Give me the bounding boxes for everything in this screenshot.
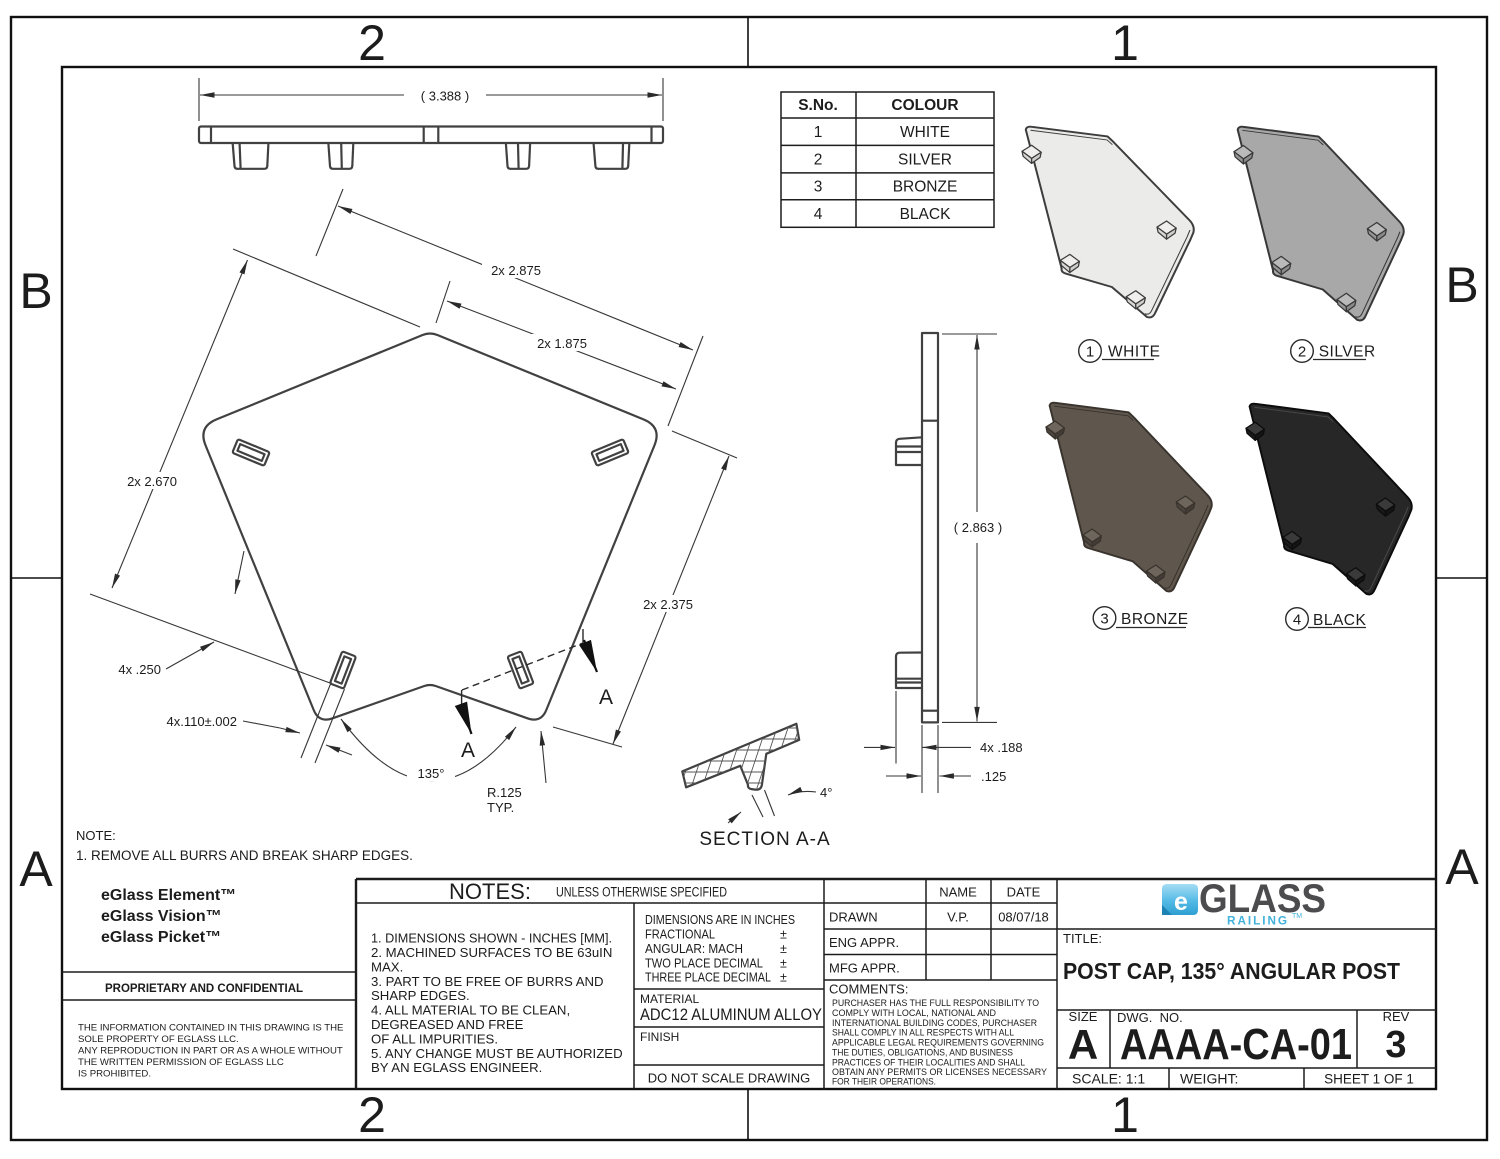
svg-text:2: 2 bbox=[1298, 344, 1306, 361]
svg-text:BRONZE: BRONZE bbox=[893, 179, 958, 196]
svg-text:S.No.: S.No. bbox=[798, 97, 838, 114]
svg-text:2x 2.875: 2x 2.875 bbox=[491, 263, 541, 278]
svg-text:2x 2.375: 2x 2.375 bbox=[643, 597, 693, 612]
svg-text:4: 4 bbox=[1293, 612, 1301, 629]
svg-text:TWO PLACE DECIMAL: TWO PLACE DECIMAL bbox=[645, 956, 763, 970]
svg-text:FINISH: FINISH bbox=[640, 1030, 679, 1044]
svg-text:ENG APPR.: ENG APPR. bbox=[829, 935, 899, 950]
svg-text:V.P.: V.P. bbox=[947, 910, 969, 925]
svg-text:±: ± bbox=[780, 928, 787, 942]
svg-text:NOTES:: NOTES: bbox=[449, 879, 531, 904]
svg-text:2x 1.875: 2x 1.875 bbox=[537, 336, 587, 351]
svg-text:4x.110±.002: 4x.110±.002 bbox=[166, 714, 237, 729]
svg-text:( 3.388 ): ( 3.388 ) bbox=[421, 89, 469, 104]
svg-text:COLOUR: COLOUR bbox=[891, 97, 958, 114]
svg-text:4°: 4° bbox=[820, 785, 832, 800]
svg-text:ANY REPRODUCTION IN PART OR AS: ANY REPRODUCTION IN PART OR AS A WHOLE W… bbox=[78, 1045, 343, 1056]
svg-text:TM: TM bbox=[1292, 913, 1302, 920]
svg-text:A: A bbox=[1068, 1021, 1098, 1068]
svg-text:3. PART TO BE FREE OF BURRS AN: 3. PART TO BE FREE OF BURRS AND bbox=[371, 974, 604, 989]
svg-text:UNLESS OTHERWISE SPECIFIED: UNLESS OTHERWISE SPECIFIED bbox=[556, 885, 727, 900]
svg-text:1: 1 bbox=[1086, 344, 1094, 361]
svg-text:REV: REV bbox=[1383, 1009, 1410, 1024]
svg-text:THE WRITTEN PERMISSION OF EGLA: THE WRITTEN PERMISSION OF EGLASS LLC bbox=[78, 1057, 284, 1068]
svg-text:THE INFORMATION CONTAINED IN T: THE INFORMATION CONTAINED IN THIS DRAWIN… bbox=[78, 1022, 343, 1033]
svg-text:3: 3 bbox=[1100, 611, 1108, 628]
svg-text:AAAA-CA-01: AAAA-CA-01 bbox=[1120, 1020, 1352, 1069]
svg-text:1. REMOVE ALL BURRS AND BREAK: 1. REMOVE ALL BURRS AND BREAK SHARP EDGE… bbox=[76, 848, 413, 863]
svg-text:WEIGHT:: WEIGHT: bbox=[1180, 1071, 1238, 1087]
svg-text:±: ± bbox=[780, 942, 787, 956]
svg-text:3: 3 bbox=[1385, 1024, 1406, 1066]
svg-text:±: ± bbox=[780, 956, 787, 970]
svg-text:4. ALL MATERIAL TO BE CLEAN,: 4. ALL MATERIAL TO BE CLEAN, bbox=[371, 1003, 570, 1018]
svg-text:OF ALL IMPURITIES.: OF ALL IMPURITIES. bbox=[371, 1031, 498, 1046]
svg-text:1: 1 bbox=[1111, 15, 1139, 71]
svg-text:SILVER: SILVER bbox=[1319, 344, 1376, 361]
svg-text:TYP.: TYP. bbox=[487, 800, 514, 815]
svg-text:SILVER: SILVER bbox=[898, 151, 952, 168]
svg-text:A: A bbox=[599, 686, 613, 709]
svg-text:DRAWN: DRAWN bbox=[829, 910, 878, 925]
svg-text:4x .188: 4x .188 bbox=[980, 740, 1023, 755]
svg-text:WHITE: WHITE bbox=[1108, 344, 1160, 361]
svg-text:eGlass Vision™: eGlass Vision™ bbox=[101, 908, 222, 925]
svg-text:PROPRIETARY AND CONFIDENTIAL: PROPRIETARY AND CONFIDENTIAL bbox=[105, 983, 303, 995]
svg-text:eGlass Picket™: eGlass Picket™ bbox=[101, 929, 221, 946]
svg-text:eGlass Element™: eGlass Element™ bbox=[101, 887, 236, 904]
svg-text:1: 1 bbox=[814, 124, 823, 141]
svg-text:e: e bbox=[1174, 888, 1188, 916]
svg-text:A: A bbox=[19, 841, 53, 897]
svg-text:TITLE:: TITLE: bbox=[1063, 931, 1102, 946]
svg-text:±: ± bbox=[780, 970, 787, 984]
svg-text:MATERIAL: MATERIAL bbox=[640, 992, 699, 1006]
svg-text:IS PROHIBITED.: IS PROHIBITED. bbox=[78, 1068, 151, 1079]
svg-text:MAX.: MAX. bbox=[371, 959, 403, 974]
svg-text:2: 2 bbox=[814, 151, 823, 168]
svg-text:POST CAP, 135° ANGULAR POST: POST CAP, 135° ANGULAR POST bbox=[1063, 958, 1401, 984]
svg-text:FRACTIONAL: FRACTIONAL bbox=[645, 928, 715, 942]
svg-text:THREE PLACE DECIMAL: THREE PLACE DECIMAL bbox=[645, 970, 771, 984]
svg-text:B: B bbox=[1445, 257, 1478, 313]
svg-text:135°: 135° bbox=[418, 766, 445, 781]
svg-text:BLACK: BLACK bbox=[900, 206, 951, 223]
svg-text:R.125: R.125 bbox=[487, 785, 522, 800]
svg-text:BRONZE: BRONZE bbox=[1121, 611, 1189, 628]
svg-text:BLACK: BLACK bbox=[1313, 612, 1366, 629]
svg-text:SCALE: 1:1: SCALE: 1:1 bbox=[1072, 1071, 1145, 1087]
svg-text:5. ANY CHANGE MUST BE AUTHORIZ: 5. ANY CHANGE MUST BE AUTHORIZED bbox=[371, 1046, 623, 1061]
svg-text:1: 1 bbox=[1111, 1087, 1139, 1143]
svg-text:ANGULAR: MACH: ANGULAR: MACH bbox=[645, 942, 743, 956]
svg-text:DATE: DATE bbox=[1007, 885, 1041, 900]
svg-text:A: A bbox=[461, 739, 475, 762]
svg-text:2x 2.670: 2x 2.670 bbox=[127, 474, 177, 489]
svg-text:4: 4 bbox=[814, 206, 823, 223]
svg-text:1. DIMENSIONS SHOWN - INCHES [: 1. DIMENSIONS SHOWN - INCHES [MM]. bbox=[371, 931, 612, 946]
svg-text:BY AN EGLASS ENGINEER.: BY AN EGLASS ENGINEER. bbox=[371, 1060, 542, 1075]
svg-text:DO NOT SCALE DRAWING: DO NOT SCALE DRAWING bbox=[648, 1071, 811, 1086]
svg-text:MFG APPR.: MFG APPR. bbox=[829, 961, 900, 976]
svg-text:4x .250: 4x .250 bbox=[118, 662, 161, 677]
svg-text:.125: .125 bbox=[981, 769, 1006, 784]
svg-text:SOLE PROPERTY OF EGLASS LLC.: SOLE PROPERTY OF EGLASS LLC. bbox=[78, 1034, 239, 1045]
svg-text:B: B bbox=[19, 263, 52, 319]
svg-text:2: 2 bbox=[358, 15, 386, 71]
svg-text:RAILING: RAILING bbox=[1227, 914, 1289, 928]
svg-text:2: 2 bbox=[358, 1087, 386, 1143]
svg-text:DIMENSIONS ARE IN INCHES: DIMENSIONS ARE IN INCHES bbox=[645, 913, 795, 927]
svg-text:WHITE: WHITE bbox=[900, 124, 950, 141]
svg-text:SHARP EDGES.: SHARP EDGES. bbox=[371, 988, 470, 1003]
svg-text:SHEET 1 OF 1: SHEET 1 OF 1 bbox=[1324, 1072, 1414, 1087]
svg-text:2. MACHINED SURFACES TO BE 63u: 2. MACHINED SURFACES TO BE 63uIN bbox=[371, 945, 612, 960]
svg-text:A: A bbox=[1445, 839, 1479, 895]
svg-text:( 2.863 ): ( 2.863 ) bbox=[954, 520, 1002, 535]
svg-text:08/07/18: 08/07/18 bbox=[998, 910, 1049, 925]
svg-text:ADC12 ALUMINUM ALLOY: ADC12 ALUMINUM ALLOY bbox=[640, 1006, 822, 1024]
svg-text:SECTION A-A: SECTION A-A bbox=[699, 829, 830, 850]
svg-text:NOTE:: NOTE: bbox=[76, 828, 116, 843]
svg-text:DEGREASED AND FREE: DEGREASED AND FREE bbox=[371, 1017, 524, 1032]
svg-text:NAME: NAME bbox=[939, 885, 977, 900]
svg-text:FOR THEIR OPERATIONS.: FOR THEIR OPERATIONS. bbox=[832, 1075, 936, 1086]
svg-text:3: 3 bbox=[814, 179, 823, 196]
svg-text:COMMENTS:: COMMENTS: bbox=[829, 982, 908, 997]
